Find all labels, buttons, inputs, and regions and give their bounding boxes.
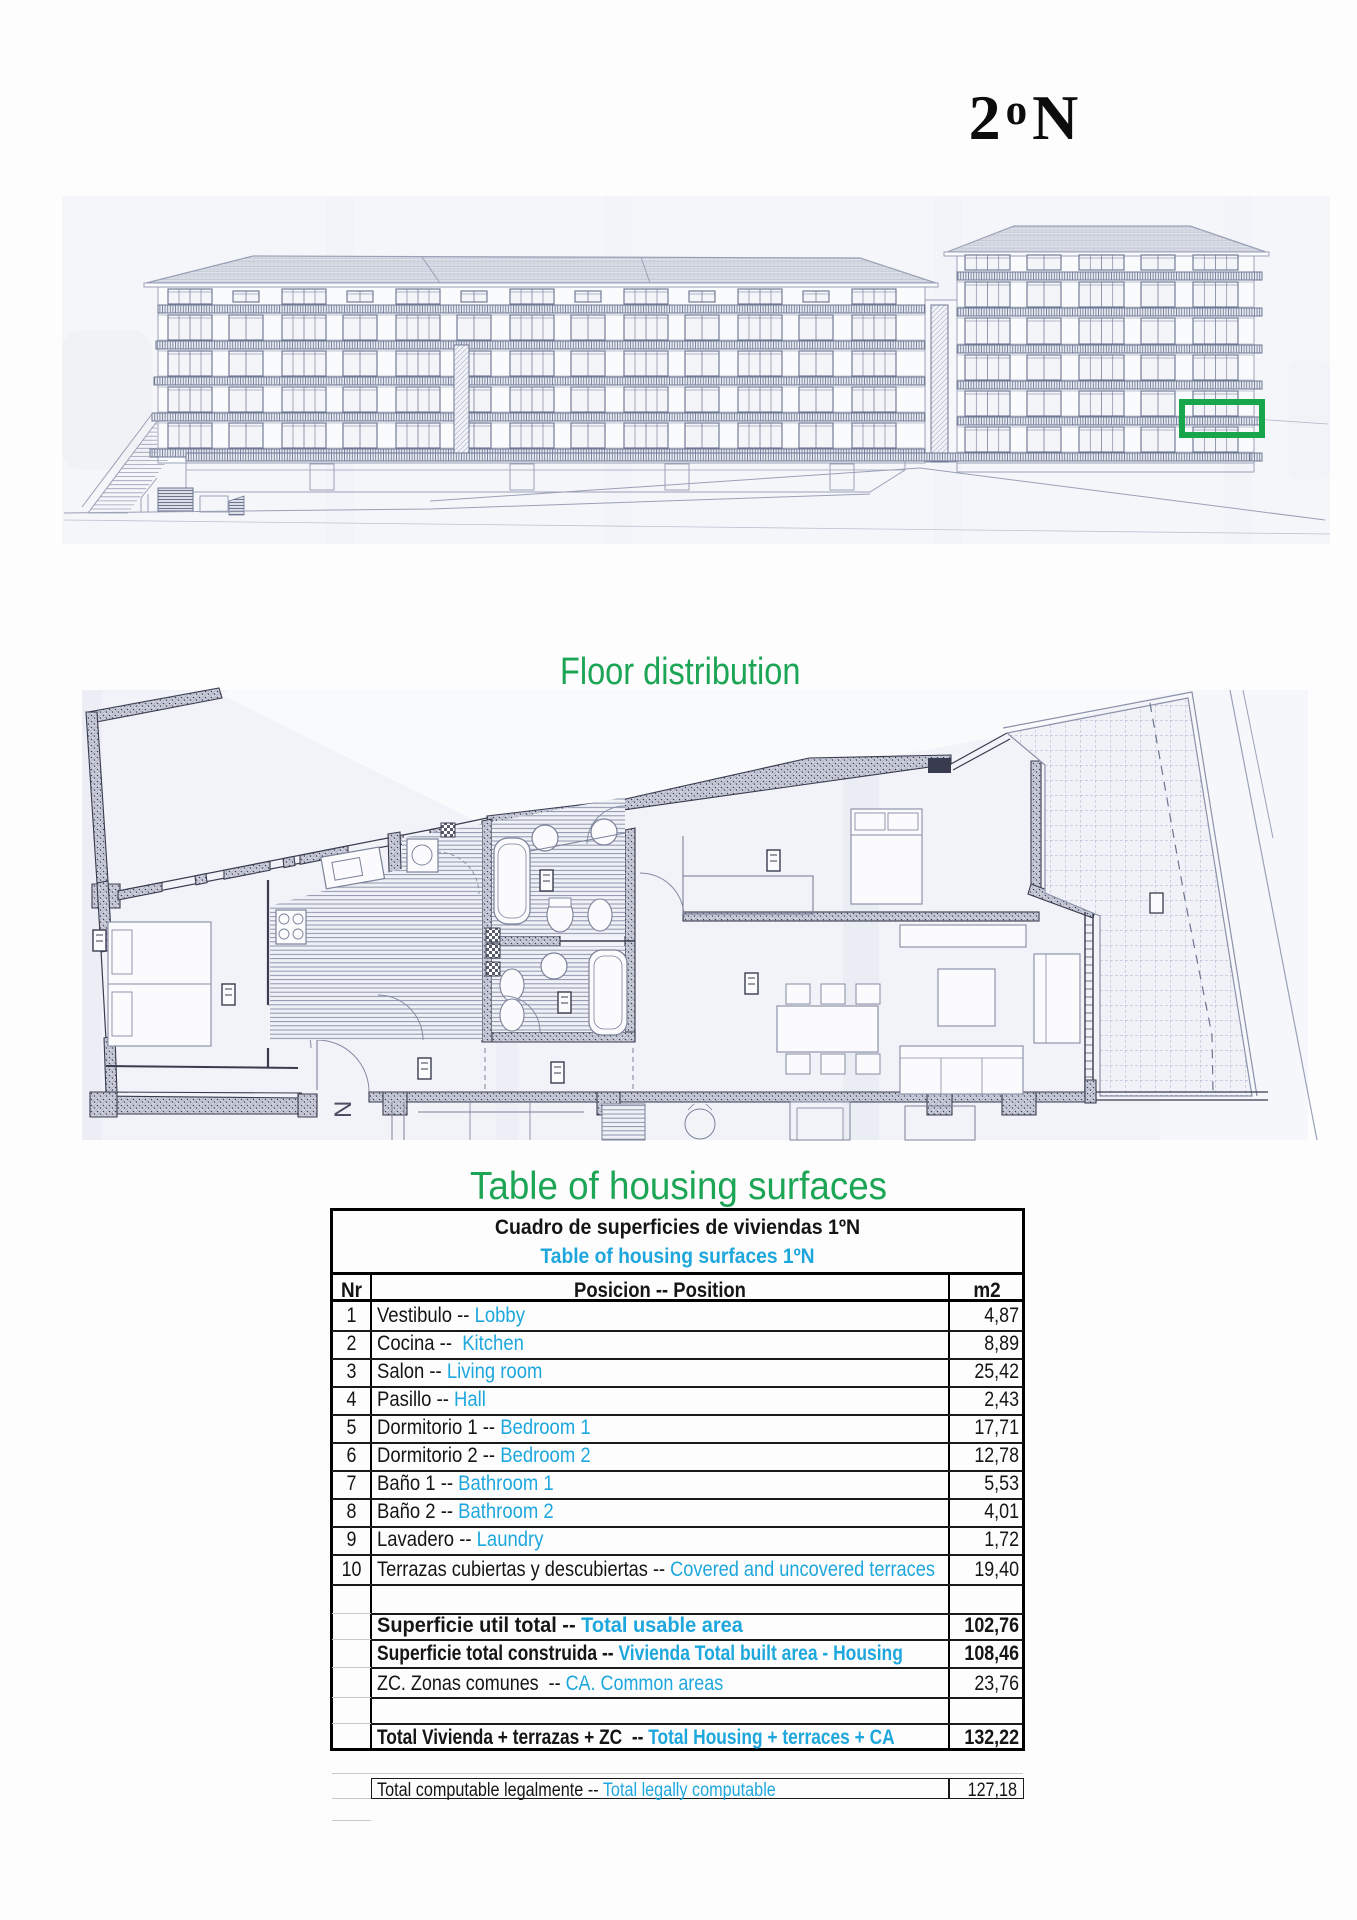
svg-text:N: N — [330, 1101, 357, 1118]
